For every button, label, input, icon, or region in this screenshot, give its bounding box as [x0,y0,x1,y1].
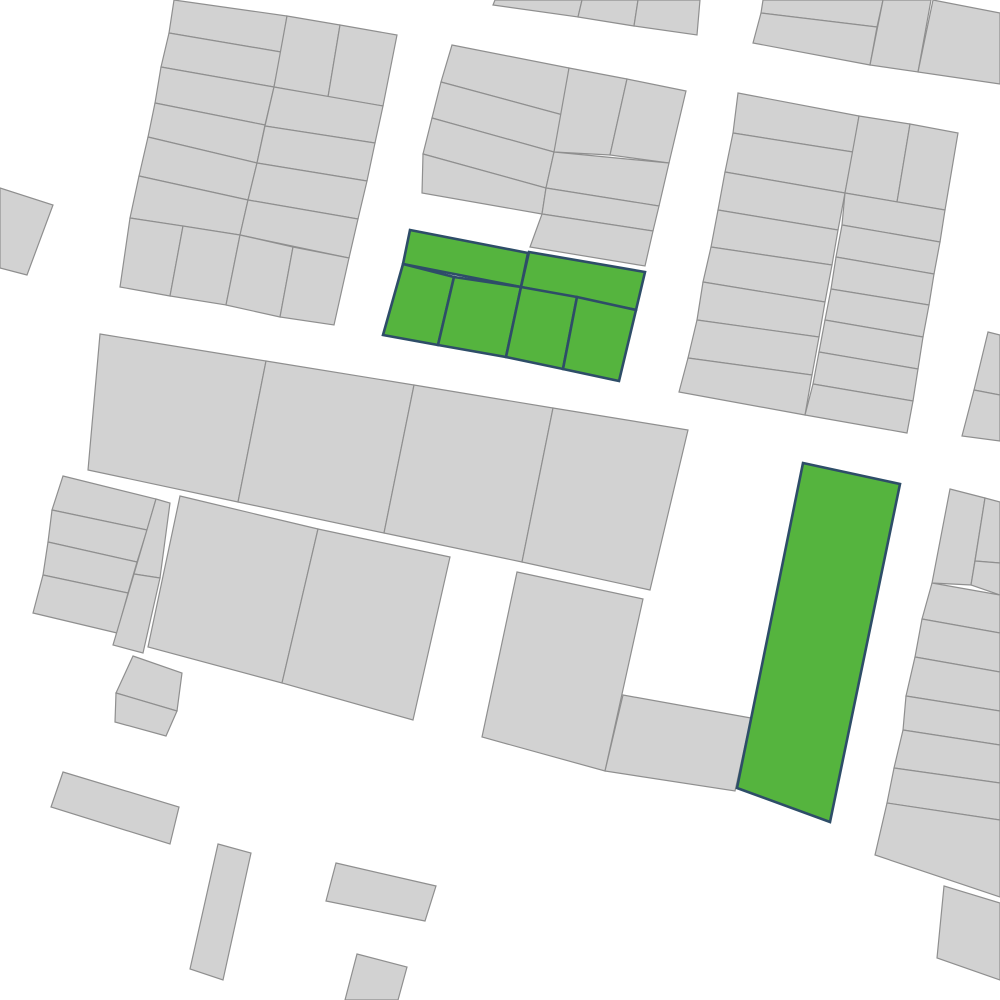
parcel-map-canvas [0,0,1000,1000]
parcel-a-p2[interactable] [328,25,397,106]
parcel-o-2[interactable] [962,390,1000,441]
parcel-e-1[interactable] [88,334,266,502]
parcel-a2-3[interactable] [634,0,700,35]
parcel-map-viewport[interactable] [0,0,1000,1000]
parcel-c-4[interactable] [918,0,1000,84]
parcel-e-2[interactable] [238,361,414,533]
parcel-e-4[interactable] [522,408,688,590]
highlighted-parcel-green-m6[interactable] [563,297,636,381]
parcel-f-10[interactable] [937,886,1000,980]
parcel-k-1[interactable] [51,772,179,844]
parcel-k-2[interactable] [190,844,251,980]
parcel-l-1[interactable] [0,188,53,275]
parcel-o-1[interactable] [974,332,1000,395]
parcel-k-3[interactable] [326,863,436,921]
parcel-a2-1[interactable] [493,0,582,17]
parcel-k-4[interactable] [345,954,407,1000]
parcel-j-2[interactable] [605,695,751,791]
parcel-f-9[interactable] [875,803,1000,897]
parcel-f-2b[interactable] [971,561,1000,595]
parcel-a2-2[interactable] [578,0,638,26]
parcel-a-b4[interactable] [280,247,349,325]
highlighted-parcel-green-n1[interactable] [737,463,900,822]
